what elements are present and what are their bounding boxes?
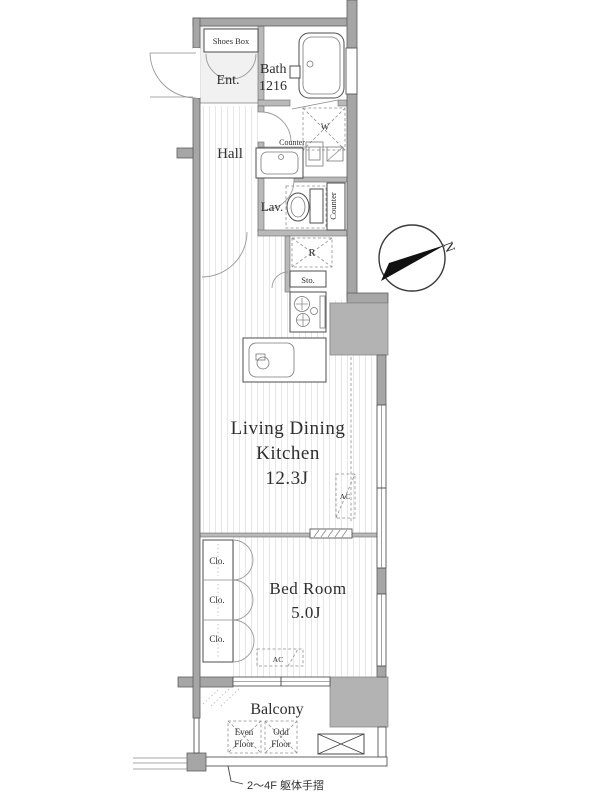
counter-top-label: Counter: [279, 138, 305, 147]
odd-floor-label-2: Floor: [271, 739, 291, 749]
wall-right-upper: [347, 0, 357, 297]
handrail-note-text: 2〜4F 躯体手摺: [247, 778, 324, 792]
floor-plan-drawing: N 2〜4F 躯体手摺 Shoes Box Ent. Bath 1216 Hal…: [0, 0, 600, 800]
balcony-shaft: [330, 677, 388, 727]
ac-ldk-label: AC: [340, 492, 350, 501]
kitchen-sink: [243, 338, 326, 382]
even-floor-label-2: Floor: [234, 739, 254, 749]
shoes-box-label: Shoes Box: [213, 36, 250, 46]
floor-plan-page: N 2〜4F 躯体手摺 Shoes Box Ent. Bath 1216 Hal…: [0, 0, 600, 800]
washer-label: W: [321, 122, 330, 132]
balcony-handrail: [197, 757, 387, 766]
wall-left: [193, 18, 200, 48]
closet-1-label: Clo.: [209, 556, 224, 566]
bath-label: Bath: [260, 62, 286, 77]
counter-side-label: Counter: [328, 192, 338, 220]
hall-label: Hall: [217, 146, 243, 162]
bath-size-label: 1216: [259, 79, 287, 94]
wall-top: [193, 18, 355, 26]
storage-label: Sto.: [301, 275, 314, 285]
lavatory-label: Lav.: [261, 199, 284, 214]
pipe-shaft: [330, 303, 388, 355]
kitchen-stove: [290, 292, 326, 332]
closet-3-label: Clo.: [209, 634, 224, 644]
ac-bedroom-label: AC: [273, 655, 283, 664]
bedroom-size-label: 5.0J: [291, 603, 321, 622]
ldk-label-2: Kitchen: [256, 443, 320, 464]
evacuation-hatch: [318, 734, 364, 754]
odd-floor-label-1: Odd: [273, 727, 289, 737]
balcony-label: Balcony: [250, 701, 303, 718]
balcony-post: [187, 753, 206, 771]
ldk-label-1: Living Dining: [231, 418, 346, 439]
ldk-size-label: 12.3J: [265, 468, 308, 489]
bath-window: [346, 48, 357, 94]
entrance-label: Ent.: [217, 73, 240, 88]
refrigerator-label: R: [309, 248, 316, 259]
even-floor-label-1: Even: [235, 727, 254, 737]
closet-2-label: Clo.: [209, 595, 224, 605]
bedroom-label: Bed Room: [269, 579, 346, 598]
